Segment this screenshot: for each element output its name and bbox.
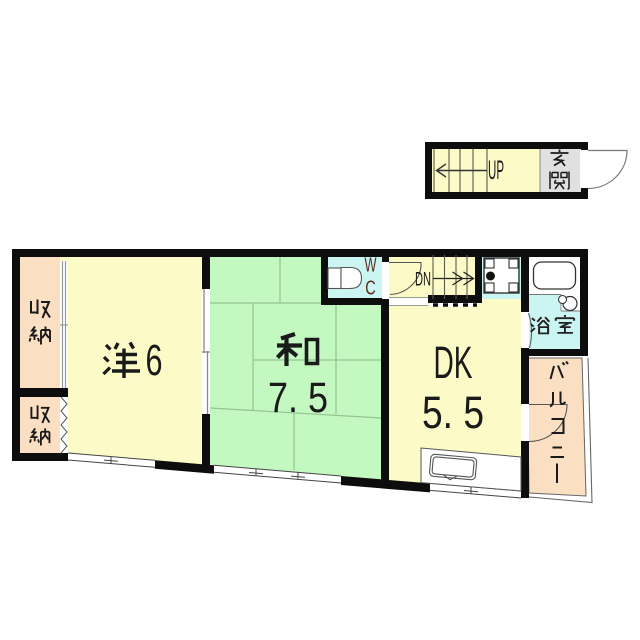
- svg-text:DK: DK: [434, 337, 473, 388]
- svg-text:DN: DN: [415, 270, 431, 291]
- svg-text:W: W: [365, 255, 377, 277]
- svg-text:UP: UP: [488, 155, 504, 185]
- svg-text:5. 5: 5. 5: [422, 387, 484, 438]
- svg-text:7. 5: 7. 5: [268, 374, 328, 422]
- svg-text:C: C: [365, 278, 376, 300]
- svg-text:6: 6: [146, 336, 163, 385]
